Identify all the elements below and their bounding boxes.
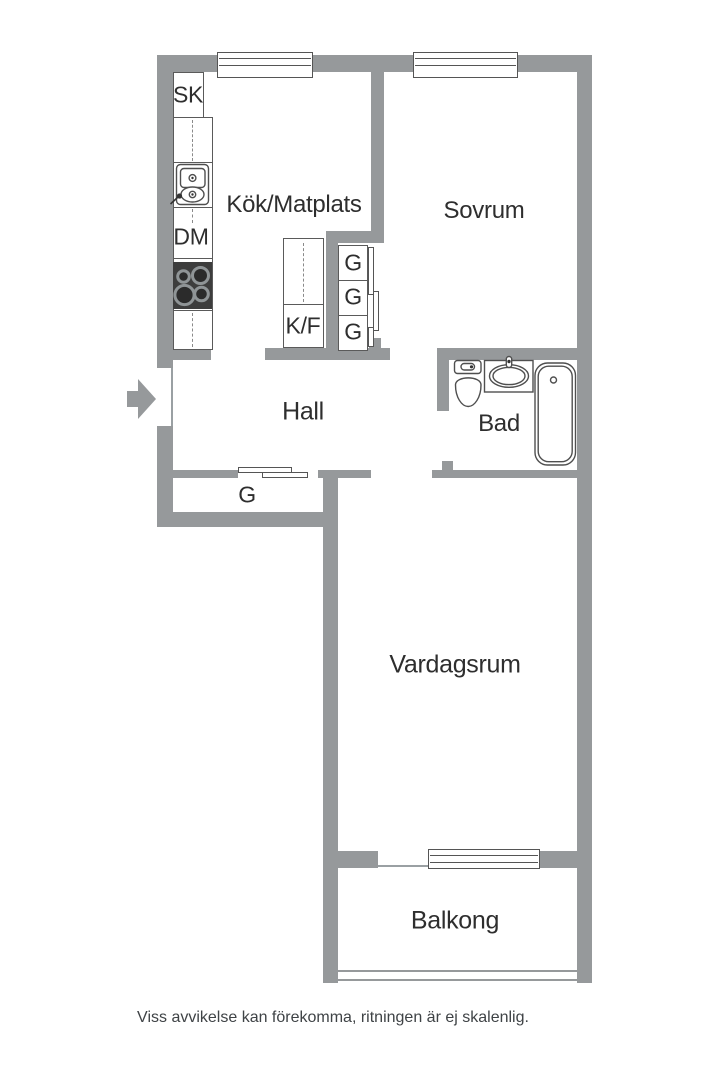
wall-bath-door-stub: [442, 461, 453, 470]
label-wardrobe-2: G: [344, 284, 362, 311]
window-glass-lines: [415, 58, 516, 66]
label-dishwasher: DM: [173, 224, 208, 251]
wall-closet-west: [326, 243, 338, 360]
wall-living-left: [323, 470, 338, 983]
kitchen-sink-cell: [173, 162, 213, 208]
room-label-bedroom: Sovrum: [444, 197, 525, 225]
cabinet-dashed-line: [303, 243, 304, 302]
sliding-door-symbol: [368, 327, 374, 347]
room-label-bathroom: Bad: [478, 410, 520, 438]
label-tall-cabinet: SK: [173, 82, 203, 109]
toilet-symbol: [455, 361, 482, 407]
kitchen-counter-cell: [173, 117, 213, 163]
sliding-door-symbol: [373, 291, 379, 331]
wall-kitchen-bedroom-divider: [371, 72, 384, 243]
window-kitchen: [217, 52, 313, 78]
wall-hall-closet: [157, 470, 238, 478]
sliding-door-symbol: [368, 247, 374, 295]
entrance-threshold-line: [171, 368, 173, 426]
room-label-living-room: Vardagsrum: [389, 651, 520, 680]
kitchen-counter-cell: [173, 310, 213, 350]
label-wardrobe-1: G: [344, 250, 362, 277]
cabinet-divider-line: [283, 304, 324, 305]
label-fridge-freezer: K/F: [286, 313, 321, 340]
wall-living-top-stub: [318, 470, 371, 478]
wall-bath-west: [437, 360, 449, 411]
wall-balcony-north-left: [323, 851, 378, 868]
room-label-hall: Hall: [282, 398, 324, 427]
washbasin-symbol: [485, 357, 534, 393]
entrance-arrow-icon: [127, 379, 156, 419]
bathtub-symbol: [535, 363, 576, 465]
wall-balcony-north-right: [540, 851, 592, 868]
window-glass-lines: [219, 58, 311, 66]
window-glass-lines: [430, 855, 538, 863]
label-wardrobe-3: G: [344, 319, 362, 346]
sliding-door-symbol: [262, 472, 308, 478]
stove-cell: [173, 258, 213, 311]
counter-dashed-line: [192, 313, 193, 347]
balcony-opening-threshold-line: [378, 865, 428, 867]
wall-left-upper: [157, 72, 173, 368]
room-label-kitchen: Kök/Matplats: [226, 191, 361, 219]
wall-bath-north: [437, 348, 592, 360]
wall-bath-south: [432, 470, 577, 478]
balcony-railing: [338, 970, 577, 981]
floor-plan: SK Kök/Matplats Sovrum DM G G G K/F Hall…: [0, 0, 720, 1080]
disclaimer-text: Viss avvikelse kan förekomma, ritningen …: [137, 1009, 529, 1027]
wall-right: [577, 72, 592, 983]
window-bedroom: [413, 52, 518, 78]
wall-closet-cap: [326, 231, 384, 243]
room-label-balcony: Balkong: [411, 907, 499, 936]
wall-closet-room-bottom: [157, 512, 338, 527]
wall-kitchen-south-right: [265, 348, 390, 360]
label-hall-wardrobe: G: [238, 482, 256, 509]
counter-dashed-line: [192, 209, 193, 223]
balcony-door-window: [428, 849, 540, 869]
counter-dashed-line: [192, 120, 193, 161]
